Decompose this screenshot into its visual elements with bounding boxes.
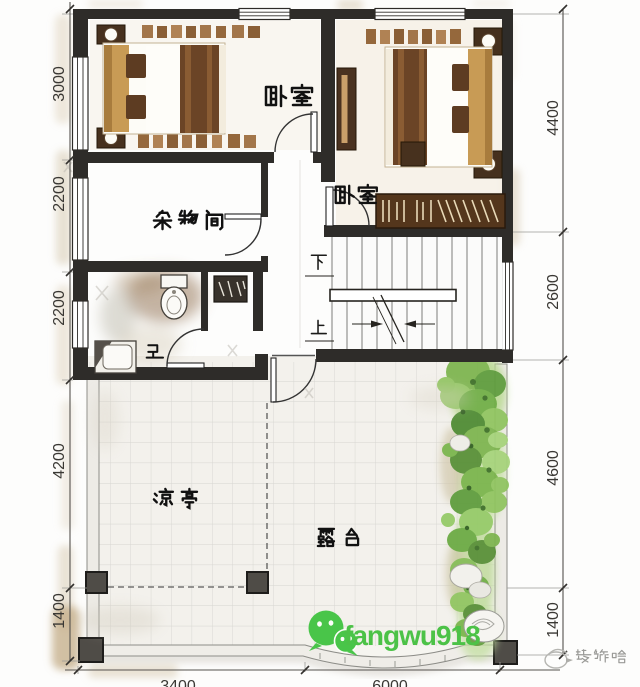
svg-text:3400: 3400 xyxy=(160,678,196,687)
svg-text:2200: 2200 xyxy=(51,290,68,326)
svg-text:4200: 4200 xyxy=(51,443,68,479)
svg-text:4400: 4400 xyxy=(545,100,562,136)
svg-text:fangwu918: fangwu918 xyxy=(344,620,480,651)
svg-text:1400: 1400 xyxy=(51,593,68,629)
svg-text:1400: 1400 xyxy=(545,602,562,638)
svg-text:2600: 2600 xyxy=(545,274,562,310)
svg-text:4600: 4600 xyxy=(545,450,562,486)
svg-text:2200: 2200 xyxy=(51,176,68,212)
svg-text:3000: 3000 xyxy=(51,66,68,102)
svg-text:6000: 6000 xyxy=(372,678,408,687)
